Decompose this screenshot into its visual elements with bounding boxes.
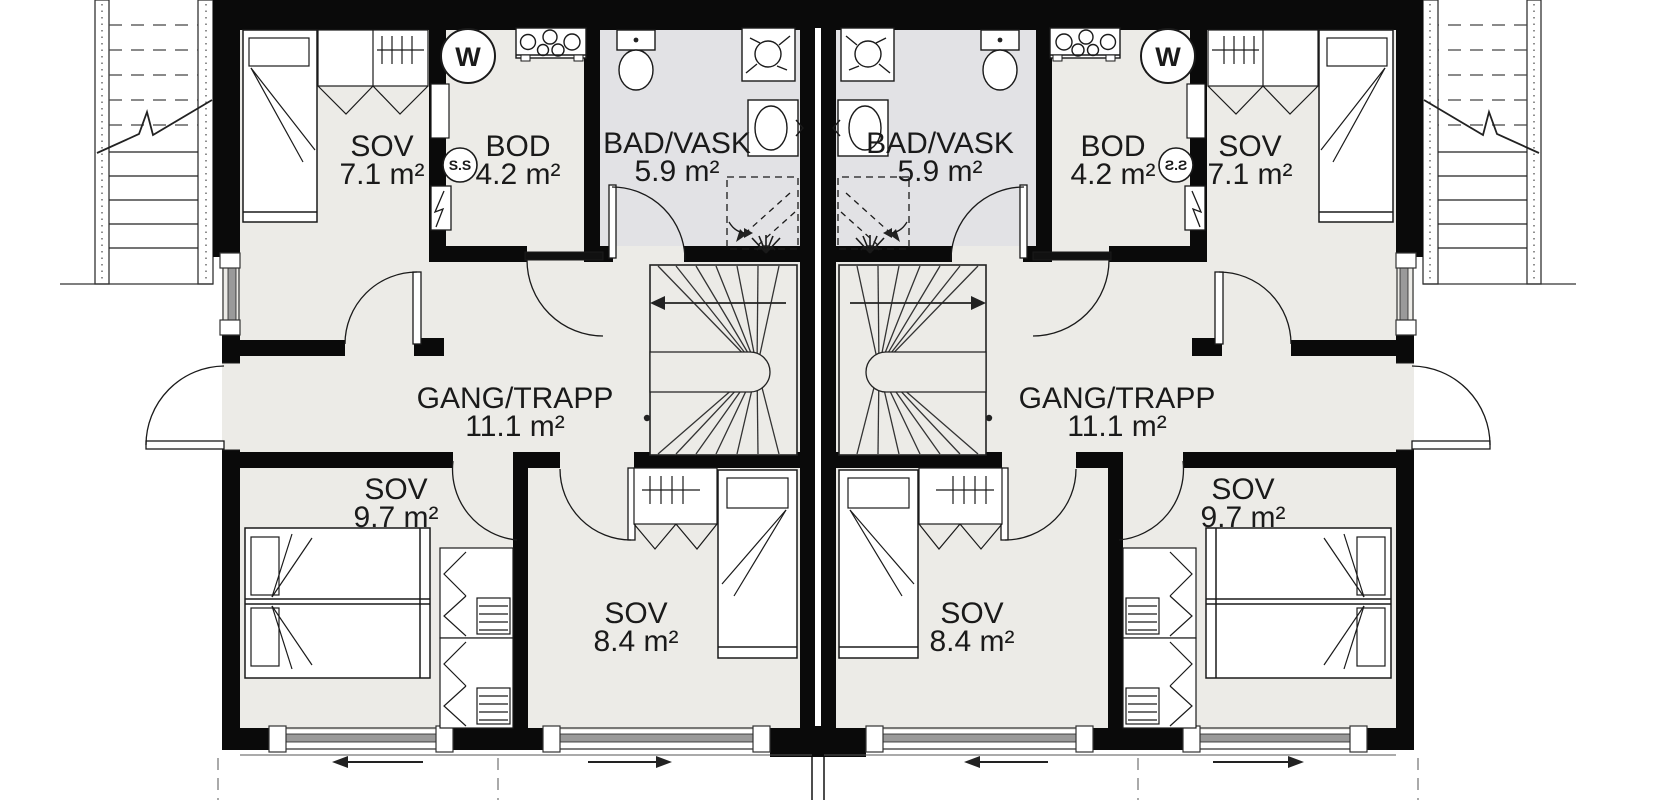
floor-plan-canvas: W S.S xyxy=(0,0,1670,800)
room-label-right-bod-area: 4.2 m² xyxy=(1070,158,1155,191)
room-label-left-gang-area: 11.1 m² xyxy=(465,410,564,443)
room-label-left-bod-area: 4.2 m² xyxy=(475,158,560,191)
electrical-panel-icon xyxy=(431,186,451,230)
washing-machine-icon: W xyxy=(441,29,495,83)
central-stair xyxy=(644,265,797,455)
bed-single-top xyxy=(243,30,317,222)
room-label-left-sov-top-area: 7.1 m² xyxy=(339,158,424,191)
window-slide-arrows xyxy=(332,756,672,768)
stair-break-line xyxy=(97,100,212,153)
floor-plan-page: W S.S xyxy=(0,0,1670,800)
terrace-lines xyxy=(218,755,812,800)
wall-niche xyxy=(431,84,449,138)
fuse-box-label: S.S xyxy=(449,157,472,173)
fuse-box-icon: S.S xyxy=(443,148,477,182)
bed-single-mid xyxy=(718,470,797,658)
room-label-right-sov-front-area: 9.7 m² xyxy=(1200,501,1285,534)
party-wall-gap xyxy=(815,28,818,726)
washing-machine-label: W xyxy=(455,42,481,72)
room-label-right-gang-area: 11.1 m² xyxy=(1067,410,1166,443)
fan-icon xyxy=(742,28,795,81)
exterior-stair xyxy=(60,0,213,284)
room-label-right-bad-area: 5.9 m² xyxy=(897,155,982,188)
cooktop-icon xyxy=(516,28,586,61)
bed-double xyxy=(245,528,430,678)
toilet-icon xyxy=(617,30,655,90)
room-label-right-sov-top-area: 7.1 m² xyxy=(1207,158,1292,191)
room-label-left-bad-area: 5.9 m² xyxy=(634,155,719,188)
room-label-right-sov-mid-area: 8.4 m² xyxy=(929,625,1014,658)
room-label-left-sov-front-area: 9.7 m² xyxy=(353,501,438,534)
wardrobe-column xyxy=(440,548,513,728)
room-label-left-sov-mid-area: 8.4 m² xyxy=(593,625,678,658)
washbasin-icon xyxy=(748,100,803,156)
